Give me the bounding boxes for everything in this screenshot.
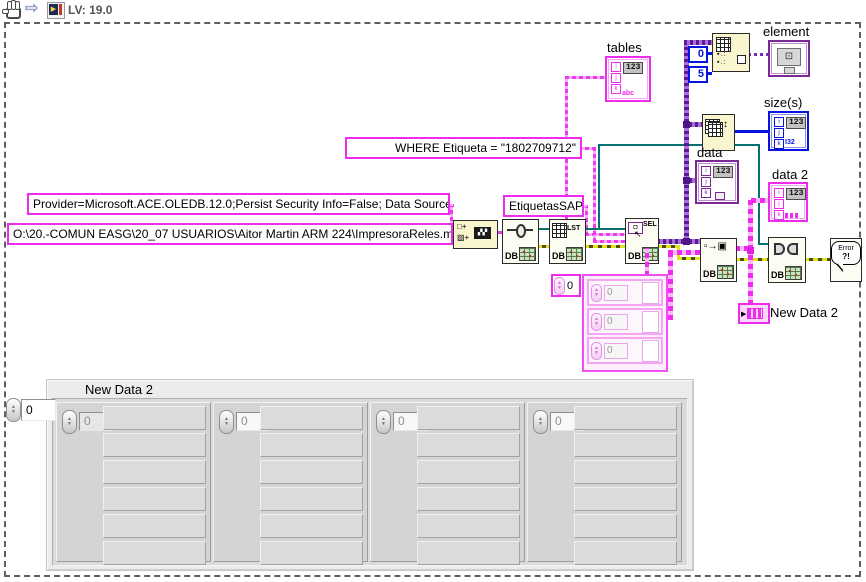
listbox-row[interactable] [574, 541, 677, 565]
concat-glyph-row1: □+ [457, 222, 467, 231]
labview-app-icon: ▶ [47, 2, 65, 19]
terminal-tab [784, 67, 795, 74]
listbox-row[interactable] [574, 487, 677, 511]
data-label: data [697, 145, 722, 160]
db-badge: DB [771, 271, 784, 280]
table-name-string-constant[interactable]: EtiquetasSAP [503, 195, 584, 217]
array-container: ▲▼ 0 ▲▼ 0 ▲▼ 0 [52, 398, 688, 566]
wire-junction [683, 238, 690, 245]
panel-index-spinner[interactable]: ▲▼ [6, 398, 21, 422]
select-arrow-glyph: ↖ [634, 229, 642, 240]
db-path-string-constant[interactable]: O:\20.-COMUN EASG\20_07 USUARIOS\Aitor M… [7, 223, 453, 245]
numeric-badge: 123 [786, 117, 806, 129]
concatenate-strings-node[interactable]: □+ ▨+ ▞▞ [453, 220, 498, 249]
db-table-icon [519, 247, 536, 261]
string-type-badge: abc [622, 90, 634, 98]
listbox-row[interactable] [260, 487, 363, 511]
numeric-spinner[interactable]: ▲▼ [591, 342, 602, 360]
cluster-string-field[interactable] [642, 311, 659, 333]
array-index-value: 0 [567, 280, 573, 292]
provider-string-constant[interactable]: Provider=Microsoft.ACE.OLEDB.12.0;Persis… [27, 193, 450, 215]
listbox-row[interactable] [103, 541, 206, 565]
wire-data2[interactable] [751, 198, 768, 203]
numeric-spinner[interactable]: ▲▼ [219, 410, 234, 434]
wire-junction [683, 121, 690, 128]
listbox-row[interactable] [260, 541, 363, 565]
listbox-row[interactable] [103, 433, 206, 457]
pan-hand-icon[interactable] [2, 1, 20, 17]
index-k: k [774, 210, 784, 220]
db-close-connection-node[interactable]: DB [768, 237, 806, 283]
cluster-element[interactable]: ▲▼ 0 [587, 337, 663, 364]
numeric-spinner[interactable]: ▲▼ [533, 410, 548, 434]
cluster-element[interactable]: ▲▼ 0 [587, 279, 663, 306]
index-constant-5[interactable]: 5 [688, 66, 708, 83]
where-clause-string-constant[interactable]: WHERE Etiqueta = "1802709712" [345, 137, 582, 159]
index-constant-0[interactable]: 0 [688, 46, 708, 63]
element-listbox[interactable] [574, 406, 677, 558]
cluster-numeric-value[interactable]: 0 [604, 314, 628, 330]
index-port-glyph: ▪.: [717, 51, 726, 58]
index-j: j [701, 177, 711, 187]
db-table-icon [566, 247, 583, 261]
listbox-row[interactable] [260, 406, 363, 430]
listbox-row[interactable] [574, 406, 677, 430]
data-indicator[interactable]: i j k 123 [695, 160, 739, 204]
sel-badge: SEL [643, 221, 657, 228]
cluster-type-badge [785, 213, 799, 218]
unplug-icon [773, 241, 799, 255]
listbox-row[interactable] [103, 514, 206, 538]
listbox-row[interactable] [260, 460, 363, 484]
wire-cluster-branch[interactable] [645, 248, 649, 276]
numeric-spinner[interactable]: ▲▼ [376, 410, 391, 434]
listbox-row[interactable] [417, 433, 520, 457]
panel-title: New Data 2 [85, 382, 153, 397]
listbox-row[interactable] [574, 514, 677, 538]
tables-indicator[interactable]: i j k 123 abc [605, 56, 651, 102]
variant-tab [715, 192, 725, 200]
index-spinner[interactable]: ▲▼ [554, 277, 565, 295]
index-j: j [611, 73, 621, 83]
cluster-array-index[interactable]: ▲▼ 0 [551, 274, 581, 297]
db-list-tables-node[interactable]: LST DB [549, 219, 586, 264]
index-port-glyph: ▪.: [717, 59, 726, 66]
cluster-numeric-value[interactable]: 0 [604, 285, 628, 301]
db-badge: DB [628, 252, 641, 261]
array-element: ▲▼ 0 [213, 402, 368, 562]
table-grid-icon [552, 223, 567, 238]
wire-data2[interactable] [748, 200, 753, 250]
data2-indicator[interactable]: i j k 123 [768, 182, 808, 222]
new-data2-panel: New Data 2 ▲▼ 0 ▲▼ 0 ▲▼ 0 [46, 379, 694, 571]
terminal-arrow: ▶ [741, 310, 746, 318]
element-listbox[interactable] [260, 406, 363, 558]
listbox-row[interactable] [103, 460, 206, 484]
string-output-glyph: ▞▞ [474, 227, 491, 239]
concat-glyph-row2: ▨+ [457, 233, 469, 242]
tables-label: tables [607, 40, 642, 55]
output-port [737, 55, 746, 64]
numeric-badge: 123 [786, 188, 806, 200]
wire-refnum[interactable] [598, 144, 760, 146]
index-i: i [774, 117, 784, 127]
wire-refnum[interactable] [584, 228, 625, 230]
wire-cluster-type[interactable] [668, 250, 702, 255]
array-element: ▲▼ 0 [527, 402, 682, 562]
array-grid-icon [708, 122, 723, 137]
index-k: k [774, 139, 784, 149]
new-data2-terminal[interactable]: ▶ [738, 303, 770, 324]
cluster-numeric-value[interactable]: 0 [604, 343, 628, 359]
wire-where[interactable] [593, 240, 625, 243]
array-element: ▲▼ 0 [370, 402, 525, 562]
index-i: i [611, 62, 621, 72]
index-i: i [701, 166, 711, 176]
listbox-row[interactable] [574, 433, 677, 457]
index-k: k [701, 188, 711, 198]
element-indicator[interactable]: ⊡ [768, 40, 810, 77]
wire-error[interactable] [677, 257, 702, 260]
listbox-row[interactable] [103, 487, 206, 511]
element-label: element [763, 24, 809, 39]
listbox-row[interactable] [103, 406, 206, 430]
db-badge: DB [552, 252, 565, 261]
numeric-spinner[interactable]: ▲▼ [591, 284, 602, 302]
cluster-element[interactable]: ▲▼ 0 [587, 308, 663, 335]
array-element: ▲▼ 0 [56, 402, 211, 562]
index-j: j [774, 128, 784, 138]
variant-glyph: ⊡ [777, 48, 801, 66]
lst-badge: LST [567, 225, 580, 232]
wire-table-name[interactable] [585, 233, 625, 236]
size-arrows-glyph: ↕ [723, 119, 728, 130]
panel-index-value[interactable]: 0 [21, 399, 56, 421]
error-text: ?! [832, 253, 860, 261]
wire-element[interactable] [748, 53, 768, 56]
db-table-icon [717, 265, 734, 279]
listbox-row[interactable] [417, 406, 520, 430]
db-badge: DB [703, 270, 716, 279]
listbox-row[interactable] [260, 514, 363, 538]
wire-junction [747, 247, 754, 254]
data2-label: data 2 [772, 167, 808, 182]
wire-refnum[interactable] [598, 145, 600, 230]
error-handler-node[interactable]: Error ?! [830, 238, 862, 282]
wire-tables[interactable] [565, 76, 607, 79]
db-table-icon [785, 266, 802, 280]
sizes-indicator[interactable]: i j k 123 I32 [768, 111, 809, 151]
listbox-row[interactable] [417, 487, 520, 511]
listbox-row[interactable] [417, 460, 520, 484]
cluster-array-constant[interactable]: ▲▼ 0 ▲▼ 0 ▲▼ 0 [582, 274, 668, 372]
element-listbox[interactable] [417, 406, 520, 558]
wire-error[interactable] [584, 245, 625, 248]
db-select-data-node[interactable]: ◘ SEL ↖ DB [625, 218, 659, 264]
cluster-string-field[interactable] [642, 340, 659, 362]
cluster-pattern [747, 308, 763, 319]
variant-to-data-glyph: ▫→▣ [704, 241, 727, 253]
db-variant-to-data-node[interactable]: ▫→▣ DB [700, 238, 737, 282]
wire-cluster-type[interactable] [668, 252, 673, 320]
wire-variant-data[interactable] [684, 40, 712, 45]
int-type-badge: I32 [785, 139, 795, 147]
sizes-label: size(s) [764, 95, 802, 110]
index-j: j [774, 199, 784, 209]
new-data2-terminal-label: New Data 2 [770, 305, 838, 320]
wire-sizes[interactable] [732, 130, 768, 133]
numeric-spinner[interactable]: ▲▼ [591, 313, 602, 331]
index-k: k [611, 84, 621, 94]
numeric-badge: 123 [713, 166, 733, 178]
listbox-row[interactable] [574, 460, 677, 484]
db-badge: DB [505, 252, 518, 261]
index-i: i [774, 188, 784, 198]
listbox-row[interactable] [417, 541, 520, 565]
wire-junction [683, 177, 690, 184]
listbox-row[interactable] [417, 514, 520, 538]
element-listbox[interactable] [103, 406, 206, 558]
labview-block-diagram: ⇨ ▶ LV: 19.0 [0, 0, 866, 582]
listbox-row[interactable] [260, 433, 363, 457]
db-open-connection-node[interactable]: DB [502, 219, 539, 264]
array-grid-icon [716, 37, 731, 52]
numeric-badge: 123 [623, 62, 643, 74]
numeric-spinner[interactable]: ▲▼ [62, 410, 77, 434]
plug-icon [507, 223, 533, 237]
index-array-node[interactable]: ▪.: ▪.: [712, 33, 750, 72]
wire-refnum[interactable] [758, 144, 760, 245]
forward-arrow-icon[interactable]: ⇨ [25, 0, 38, 18]
wire-new-data2[interactable] [748, 249, 753, 305]
wire-error[interactable] [804, 258, 831, 261]
lv-version-label: LV: 19.0 [68, 3, 112, 17]
error-bubble-icon: Error ?! [831, 241, 861, 265]
cluster-string-field[interactable] [642, 282, 659, 304]
wire-variant-data[interactable] [689, 122, 703, 127]
wire-variant-data[interactable] [657, 239, 685, 244]
